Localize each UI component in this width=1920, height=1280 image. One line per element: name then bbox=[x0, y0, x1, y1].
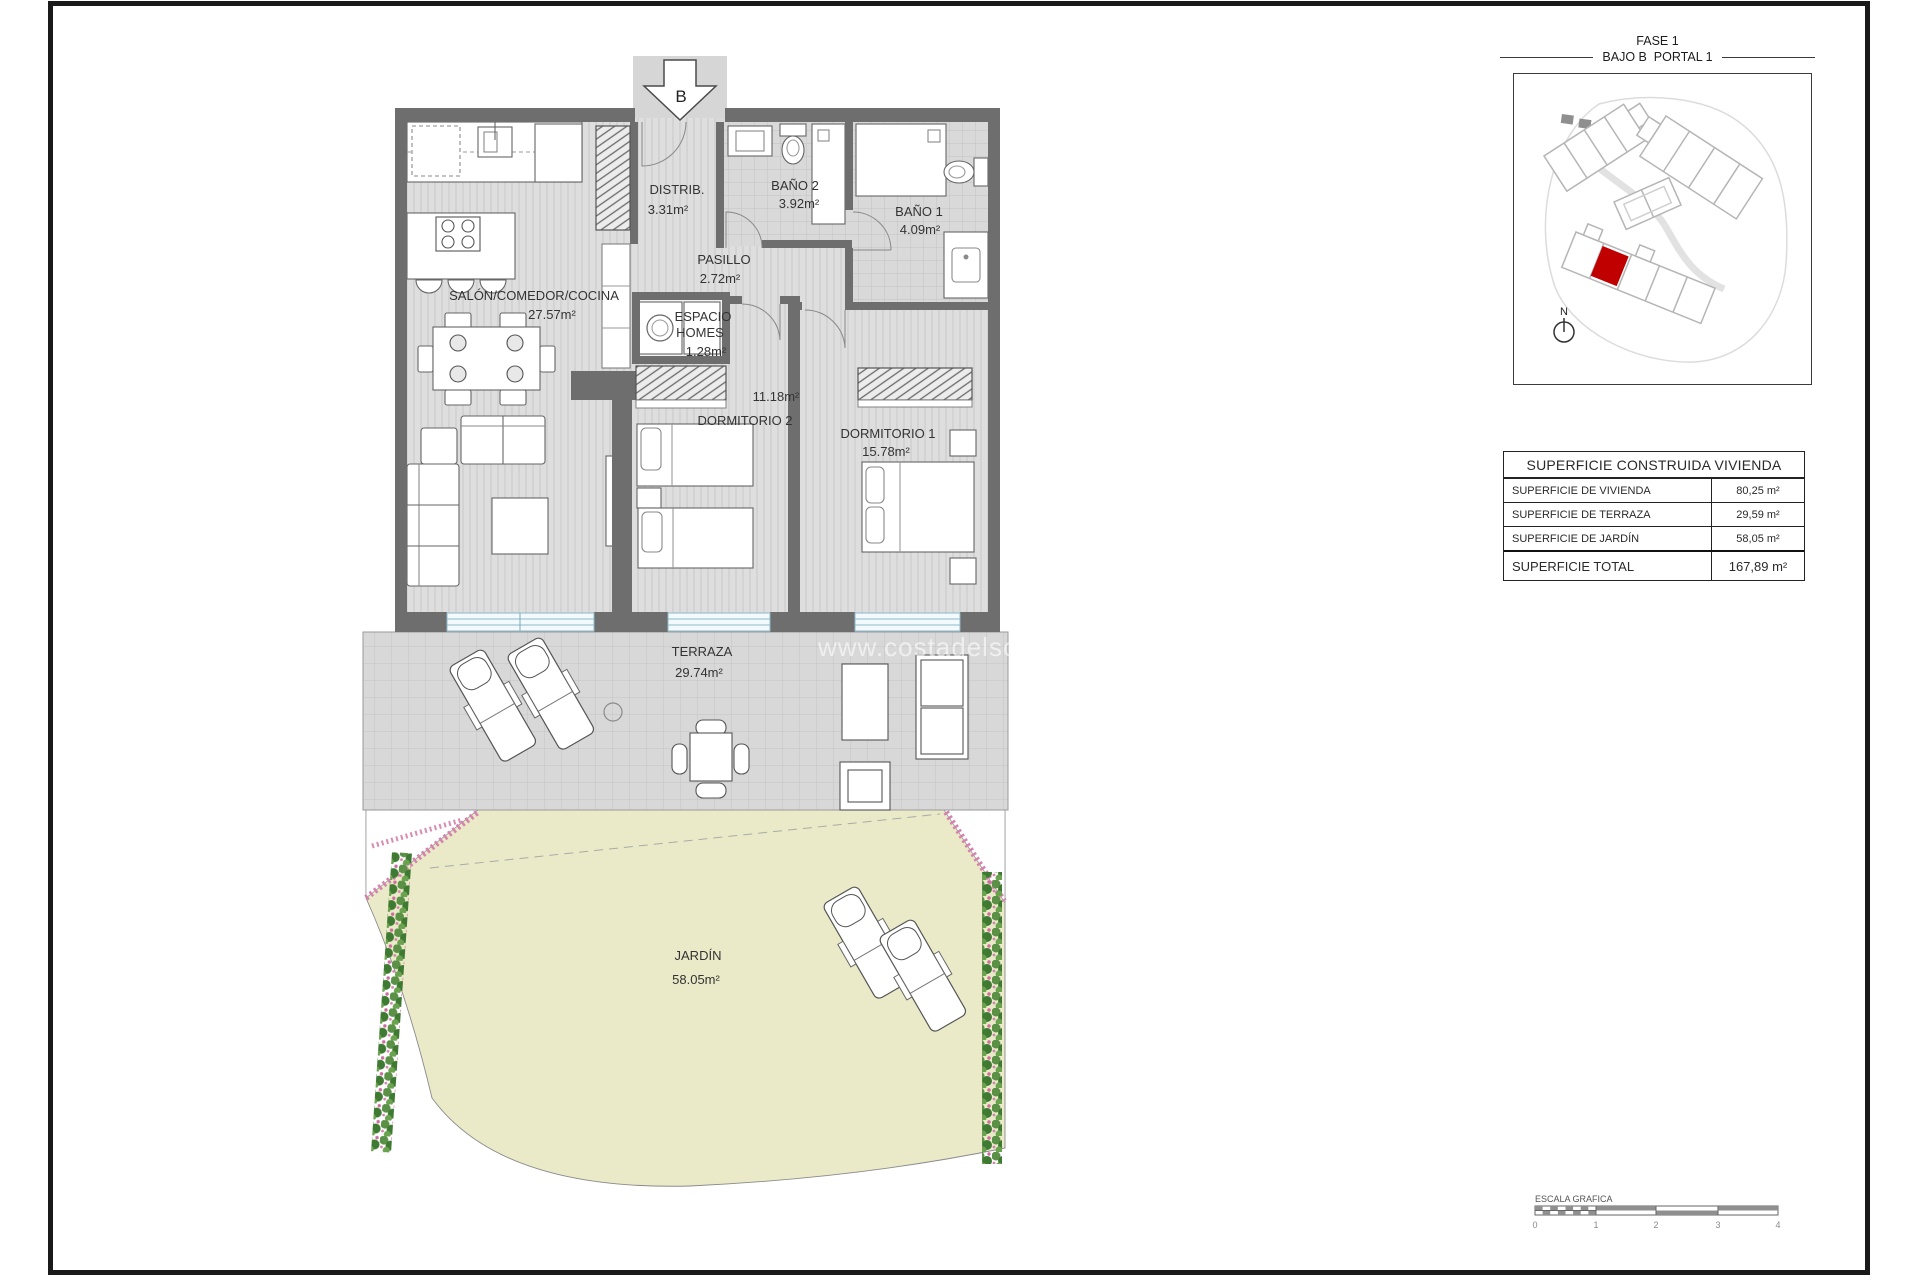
site-plan-box: N bbox=[1513, 73, 1812, 385]
location-panel-title: FASE 1 BAJO B PORTAL 1 bbox=[1500, 34, 1815, 65]
row-label: SUPERFICIE DE JARDÍN bbox=[1504, 527, 1711, 550]
row-label: SUPERFICIE DE TERRAZA bbox=[1504, 503, 1711, 526]
room-label-dormitorio2: DORMITORIO 2 bbox=[697, 413, 792, 428]
scale-tick: 3 bbox=[1715, 1220, 1720, 1230]
room-area-terraza: 29.74m² bbox=[675, 665, 723, 680]
room-label-espacio-1: ESPACIO bbox=[675, 309, 732, 324]
graphic-scale: ESCALA GRAFICA 0 1 2 3 4 bbox=[1518, 1190, 1818, 1242]
entrance-label: B bbox=[675, 87, 686, 106]
total-value: 167,89 m² bbox=[1711, 552, 1804, 580]
room-label-espacio-2: HOMES bbox=[676, 325, 724, 340]
scale-bar bbox=[1535, 1206, 1778, 1215]
total-label: SUPERFICIE TOTAL bbox=[1504, 552, 1711, 580]
title-rule-left bbox=[1500, 57, 1593, 58]
row-value: 80,25 m² bbox=[1711, 479, 1804, 502]
room-label-bano2: BAÑO 2 bbox=[771, 178, 819, 193]
unit-label: BAJO B PORTAL 1 bbox=[1593, 49, 1721, 65]
room-area-distrib: 3.31m² bbox=[648, 202, 689, 217]
table-row: SUPERFICIE DE JARDÍN 58,05 m² bbox=[1504, 526, 1804, 550]
north-label: N bbox=[1560, 306, 1568, 318]
room-label-terraza: TERRAZA bbox=[672, 644, 733, 659]
scale-title: ESCALA GRAFICA bbox=[1535, 1194, 1613, 1204]
table-total-row: SUPERFICIE TOTAL 167,89 m² bbox=[1504, 550, 1804, 580]
surface-table-header: SUPERFICIE CONSTRUIDA VIVIENDA bbox=[1504, 452, 1804, 478]
room-area-jardin: 58.05m² bbox=[672, 972, 720, 987]
windows bbox=[447, 613, 960, 631]
scale-tick: 4 bbox=[1775, 1220, 1780, 1230]
scale-ticks: 0 1 2 3 4 bbox=[1532, 1220, 1780, 1230]
scale-tick: 2 bbox=[1653, 1220, 1658, 1230]
row-label: SUPERFICIE DE VIVIENDA bbox=[1504, 479, 1711, 502]
room-label-bano1: BAÑO 1 bbox=[895, 204, 943, 219]
room-area-salon: 27.57m² bbox=[528, 307, 576, 322]
phase-label: FASE 1 bbox=[1500, 34, 1815, 49]
hedge-right bbox=[982, 872, 1002, 1164]
fridge-column bbox=[602, 244, 630, 368]
room-label-jardin: JARDÍN bbox=[675, 948, 722, 963]
garden-area: JARDÍN 58.05m² bbox=[366, 810, 1005, 1186]
table-row: SUPERFICIE DE TERRAZA 29,59 m² bbox=[1504, 502, 1804, 526]
row-value: 29,59 m² bbox=[1711, 503, 1804, 526]
room-area-dormitorio2: 11.18m² bbox=[753, 389, 800, 404]
table-row: SUPERFICIE DE VIVIENDA 80,25 m² bbox=[1504, 478, 1804, 502]
room-area-dormitorio1: 15.78m² bbox=[862, 444, 910, 459]
room-label-distrib: DISTRIB. bbox=[650, 182, 705, 197]
bedroom2-wardrobe bbox=[636, 366, 726, 400]
scale-tick: 1 bbox=[1593, 1220, 1598, 1230]
site-building-left bbox=[1544, 97, 1658, 192]
room-area-bano2: 3.92m² bbox=[779, 196, 820, 211]
surface-table: SUPERFICIE CONSTRUIDA VIVIENDA SUPERFICI… bbox=[1503, 451, 1805, 581]
entry-closet bbox=[596, 126, 630, 230]
floor-plan: JARDÍN 58.05m² TERRAZA 29.74m² bbox=[355, 30, 1045, 1210]
watermark: www.costadelsolw bbox=[818, 632, 1045, 663]
room-area-espacio: 1.28m² bbox=[686, 344, 727, 359]
room-label-salon: SALÓN/COMEDOR/COCINA bbox=[449, 288, 619, 303]
room-label-pasillo: PASILLO bbox=[697, 252, 750, 267]
title-rule-right bbox=[1722, 57, 1815, 58]
row-value: 58,05 m² bbox=[1711, 527, 1804, 550]
room-label-dormitorio1: DORMITORIO 1 bbox=[840, 426, 935, 441]
room-area-pasillo: 2.72m² bbox=[700, 271, 741, 286]
bedroom1-wardrobe bbox=[858, 368, 972, 400]
site-plan: N bbox=[1514, 74, 1810, 383]
scale-tick: 0 bbox=[1532, 1220, 1537, 1230]
room-area-bano1: 4.09m² bbox=[900, 222, 941, 237]
